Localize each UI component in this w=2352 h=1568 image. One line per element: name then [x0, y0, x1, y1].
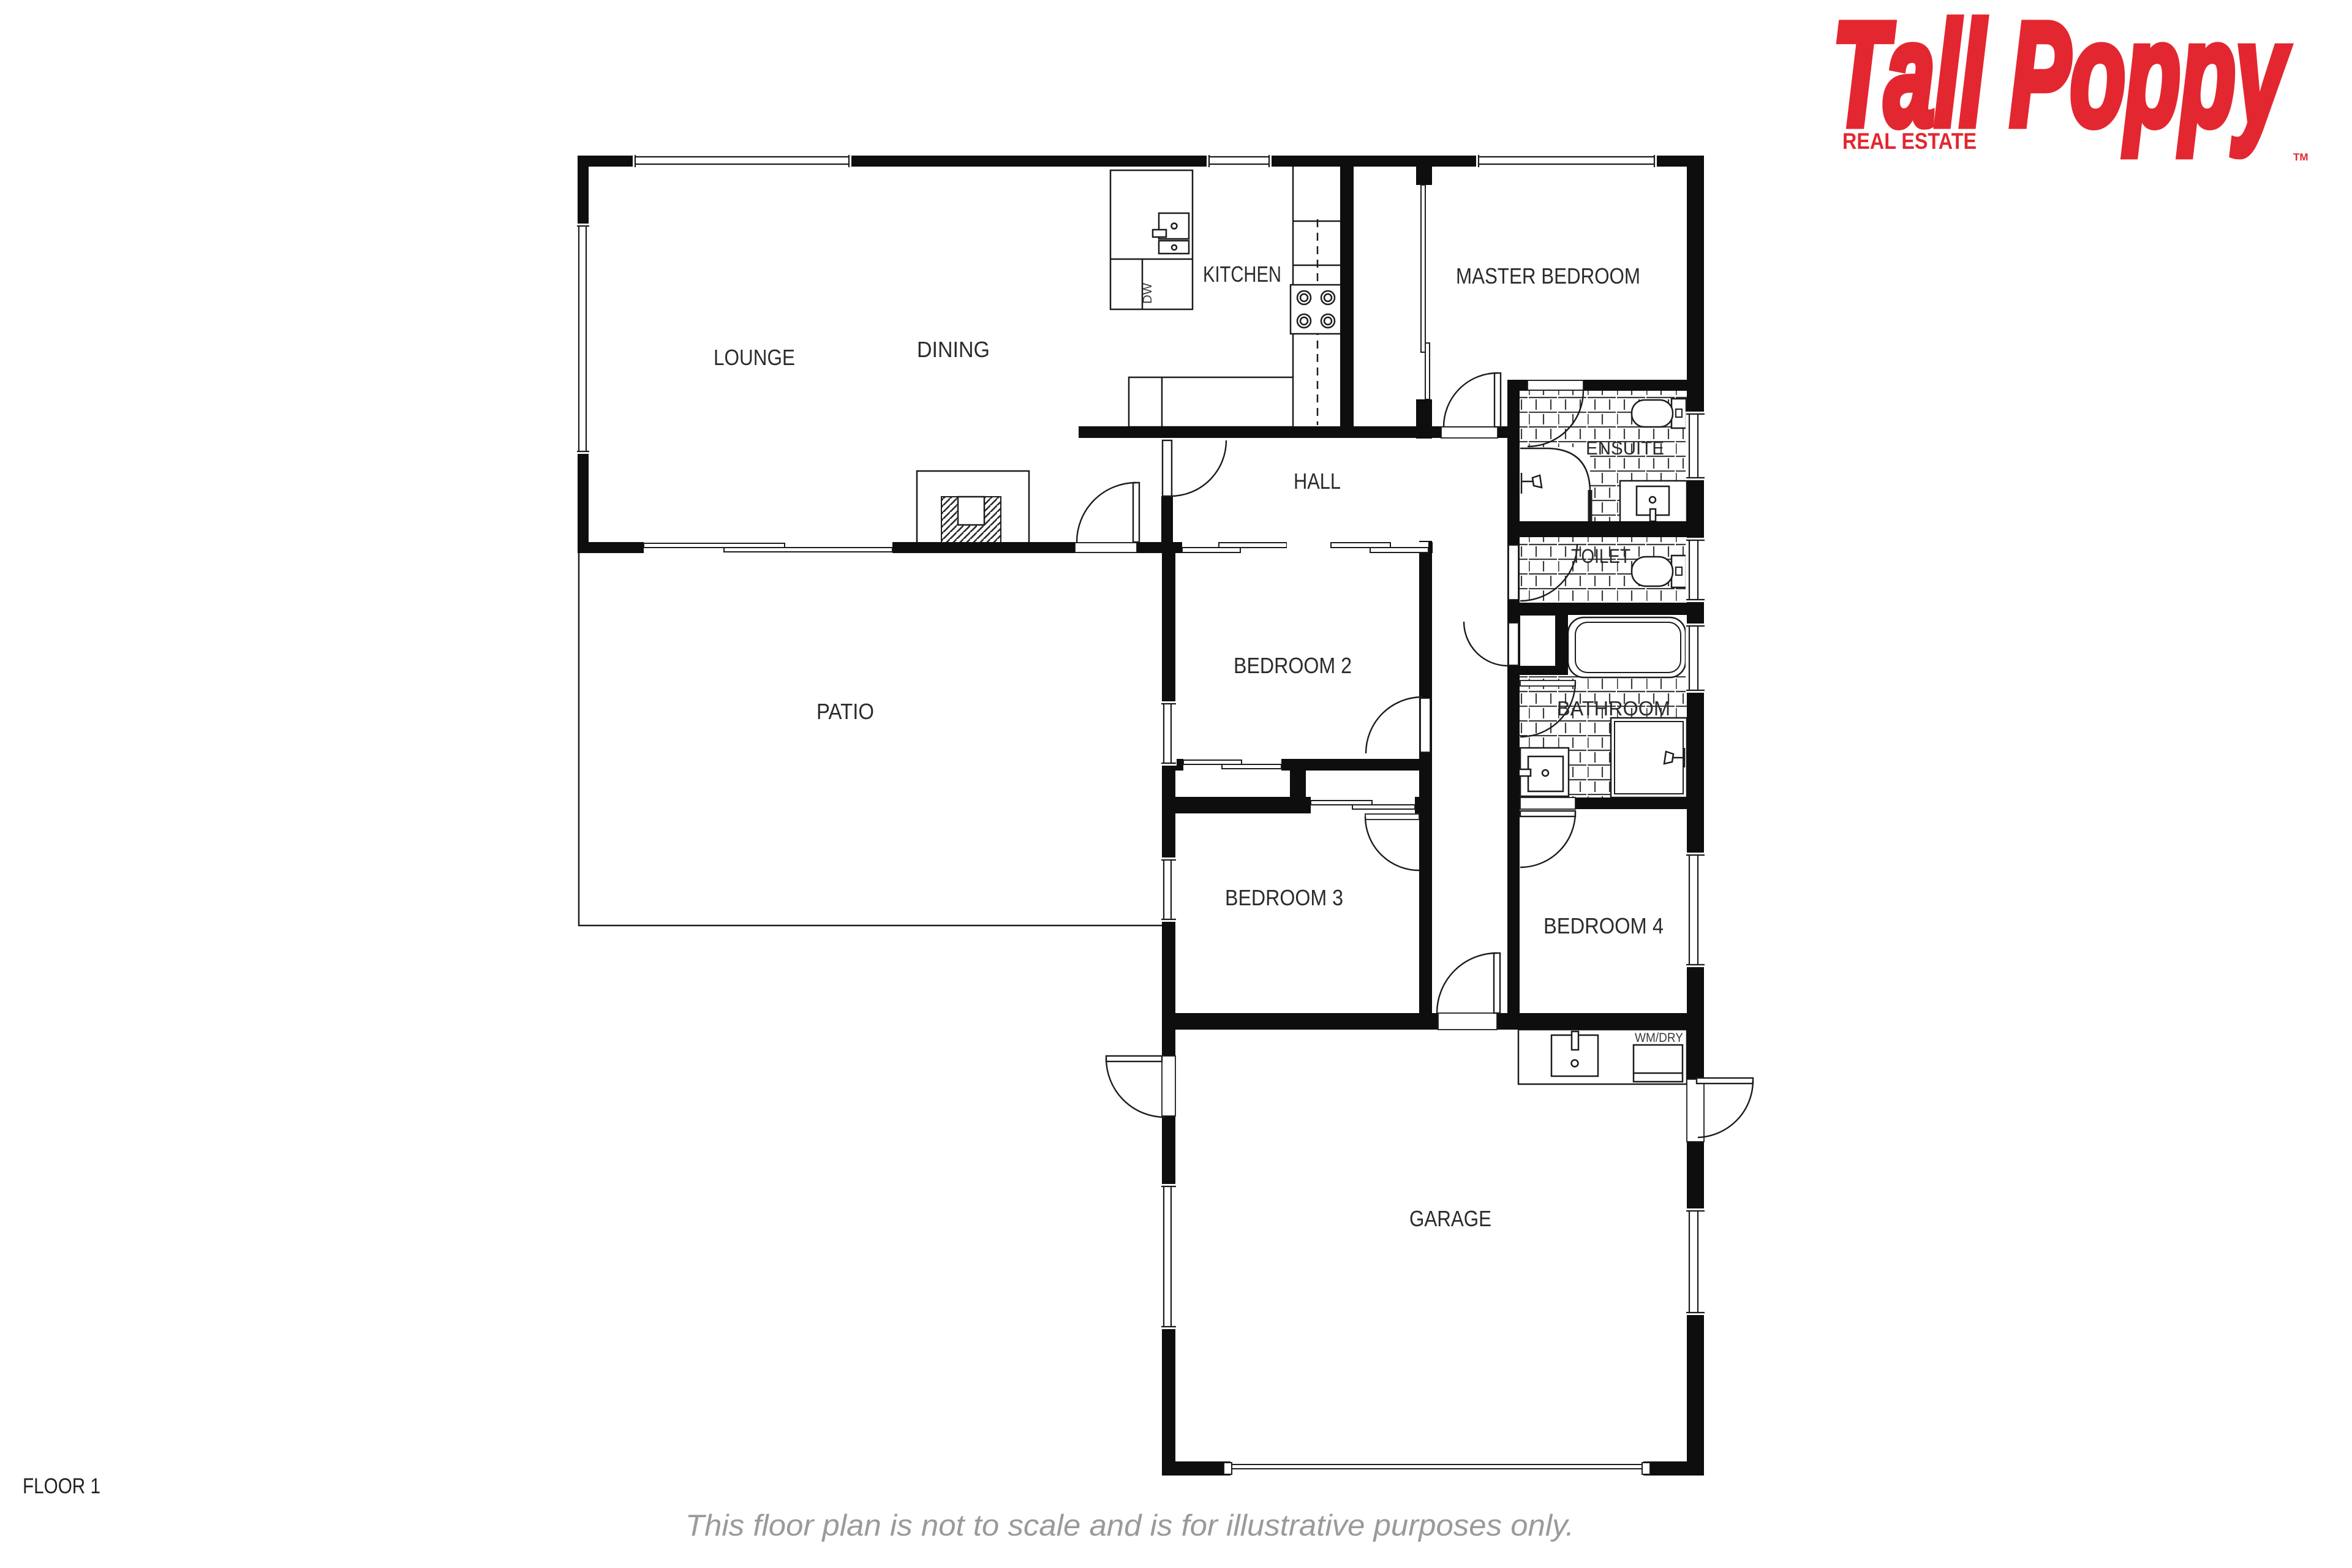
- svg-text:This floor plan is not to scal: This floor plan is not to scale and is f…: [685, 1509, 1574, 1542]
- svg-text:ENSUITE: ENSUITE: [1586, 437, 1664, 459]
- svg-text:BEDROOM 4: BEDROOM 4: [1543, 913, 1664, 938]
- svg-text:FLOOR 1: FLOOR 1: [23, 1474, 100, 1498]
- svg-text:PATIO: PATIO: [816, 699, 874, 724]
- svg-text:KITCHEN: KITCHEN: [1203, 262, 1281, 287]
- svg-text:BEDROOM 3: BEDROOM 3: [1225, 885, 1343, 910]
- svg-text:DINING: DINING: [917, 337, 990, 362]
- svg-text:LOUNGE: LOUNGE: [714, 345, 795, 370]
- svg-text:MASTER BEDROOM: MASTER BEDROOM: [1456, 263, 1640, 288]
- svg-text:TM: TM: [2293, 151, 2309, 163]
- svg-text:TOILET: TOILET: [1571, 545, 1630, 567]
- svg-text:GARAGE: GARAGE: [1409, 1206, 1491, 1231]
- svg-text:WM/DRY: WM/DRY: [1635, 1031, 1683, 1045]
- svg-text:HALL: HALL: [1294, 469, 1341, 494]
- svg-text:DW: DW: [1141, 283, 1155, 304]
- svg-text:BATHROOM: BATHROOM: [1557, 697, 1670, 720]
- svg-text:REAL ESTATE: REAL ESTATE: [1842, 129, 1977, 154]
- svg-text:BEDROOM 2: BEDROOM 2: [1234, 653, 1352, 678]
